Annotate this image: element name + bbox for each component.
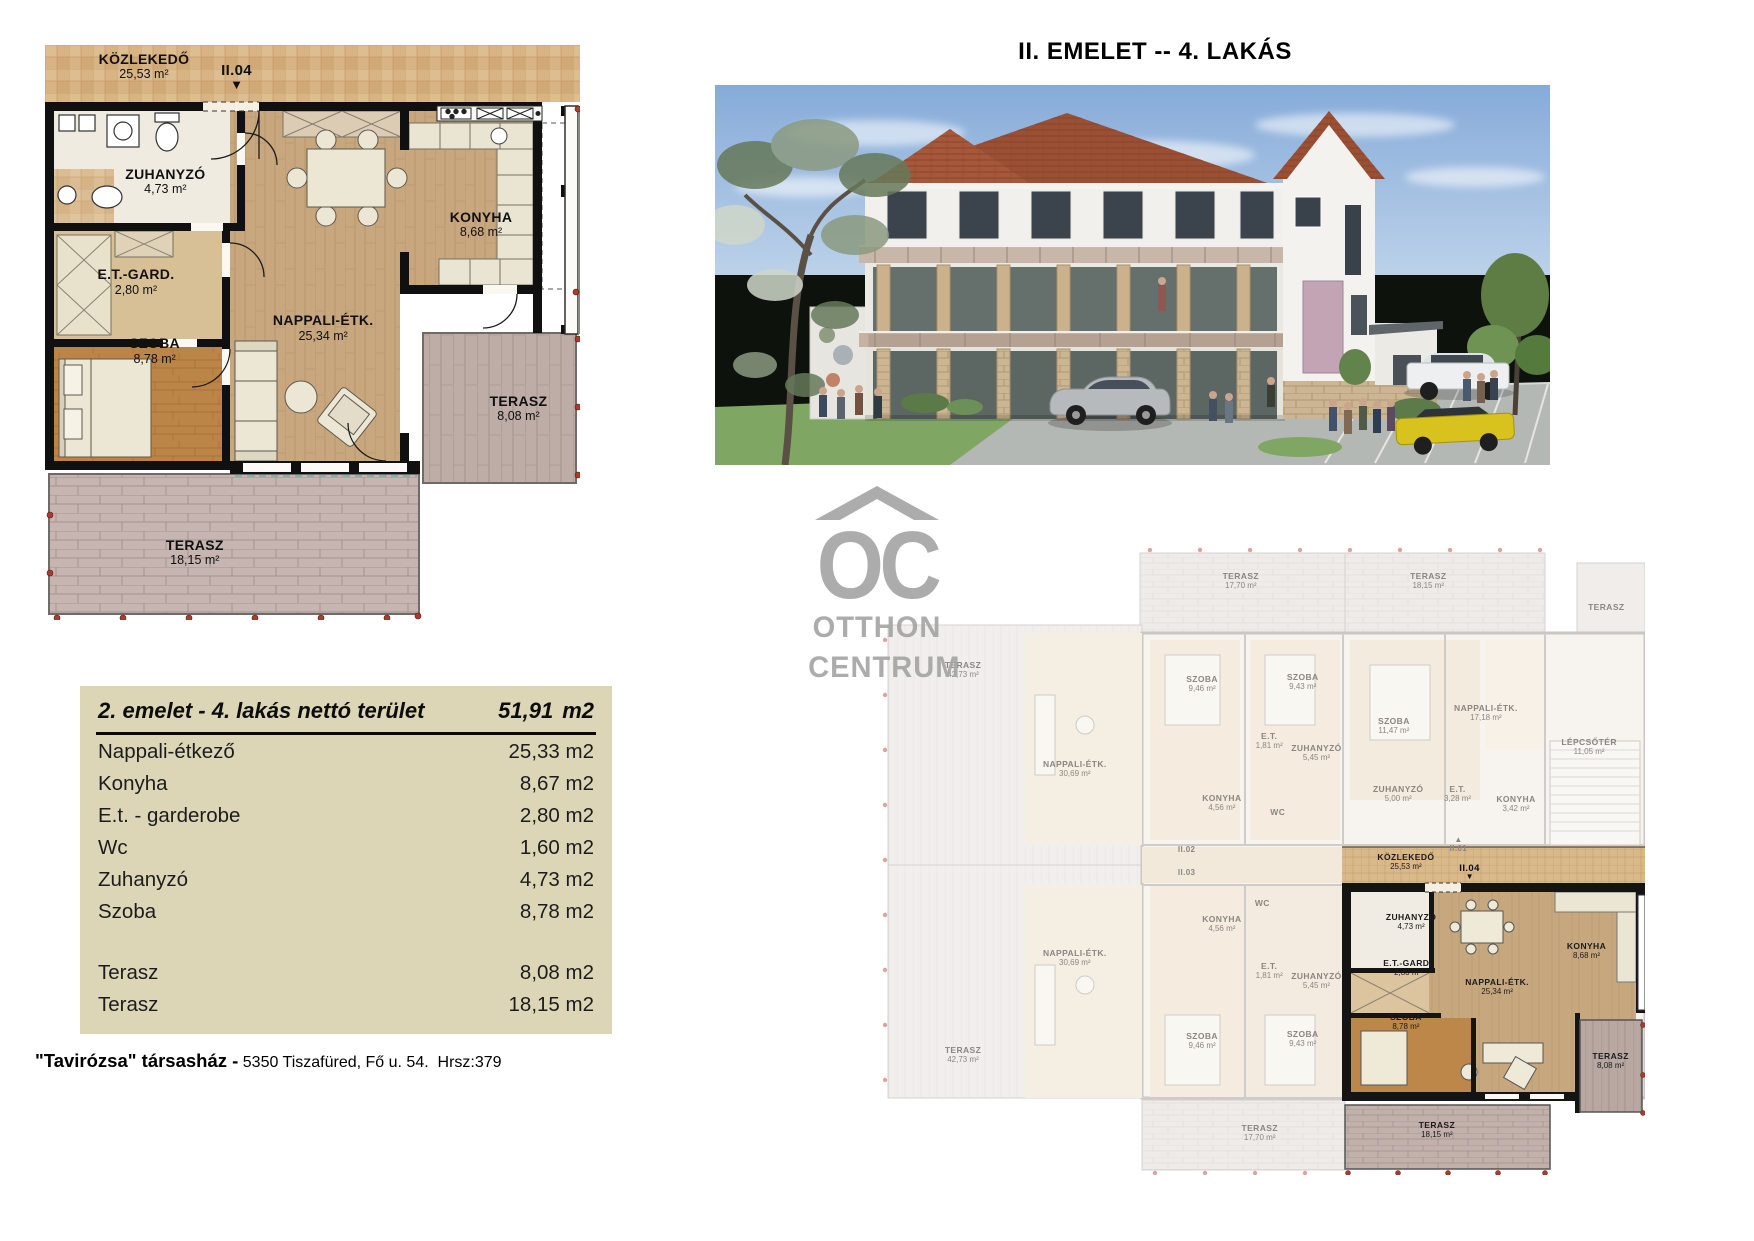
footer-building-name: "Tavirózsa" társasház - xyxy=(35,1050,238,1071)
footer-address: "Tavirózsa" társasház - 5350 Tiszafüred,… xyxy=(35,1050,502,1072)
area-table-row: Zuhanyzó4,73 m2 xyxy=(96,863,596,895)
area-table-row: Nappali-étkező25,33 m2 xyxy=(96,735,596,767)
balcony-lower xyxy=(859,333,1291,347)
area-table-row: E.t. - garderobe2,80 m2 xyxy=(96,799,596,831)
area-table: 2. emelet - 4. lakás nettó terület 51,91… xyxy=(80,686,612,1034)
balcony-upper xyxy=(859,247,1291,263)
document-page: KÖZLEKEDŐ25,53 m²II.04▼ZUHANYZÓ4,73 m²E.… xyxy=(0,0,1754,1241)
watermark-word-centrum: CENTRUM xyxy=(808,648,946,688)
terrace-small-area xyxy=(423,333,576,483)
building-3d-render xyxy=(715,85,1550,465)
corridor-area xyxy=(45,45,580,102)
area-table-row: Terasz8,08 m2 xyxy=(96,956,596,988)
area-table-header: 2. emelet - 4. lakás nettó terület 51,91… xyxy=(96,696,596,735)
terrace-large-area xyxy=(49,474,419,614)
pink-panel xyxy=(1303,281,1343,373)
area-table-row: Szoba8,78 m2 xyxy=(96,895,596,927)
floor-plan-drawing xyxy=(45,45,580,620)
table-title: 2. emelet - 4. lakás nettó terület xyxy=(98,698,424,724)
otthon-centrum-watermark: OC OTTHON CENTRUM xyxy=(806,486,948,688)
area-table-row: Konyha8,67 m2 xyxy=(96,767,596,799)
watermark-initials: OC xyxy=(813,524,941,608)
page-title: II. EMELET -- 4. LAKÁS xyxy=(745,38,1565,66)
area-table-rows: Nappali-étkező25,33 m2Konyha8,67 m2E.t. … xyxy=(96,735,596,1020)
area-table-row: Wc1,60 m2 xyxy=(96,831,596,863)
footer-address-text: 5350 Tiszafüred, Fő u. 54. Hrsz:379 xyxy=(243,1054,502,1071)
kitchen-appliances xyxy=(437,106,542,121)
apartment-floor-plan: KÖZLEKEDŐ25,53 m²II.04▼ZUHANYZÓ4,73 m²E.… xyxy=(45,45,580,620)
highlighted-apartment xyxy=(1342,847,1645,1175)
watermark-word-otthon: OTTHON xyxy=(808,608,946,648)
table-total: 51,91m2 xyxy=(498,698,594,724)
area-table-row: Terasz18,15 m2 xyxy=(96,988,596,1020)
